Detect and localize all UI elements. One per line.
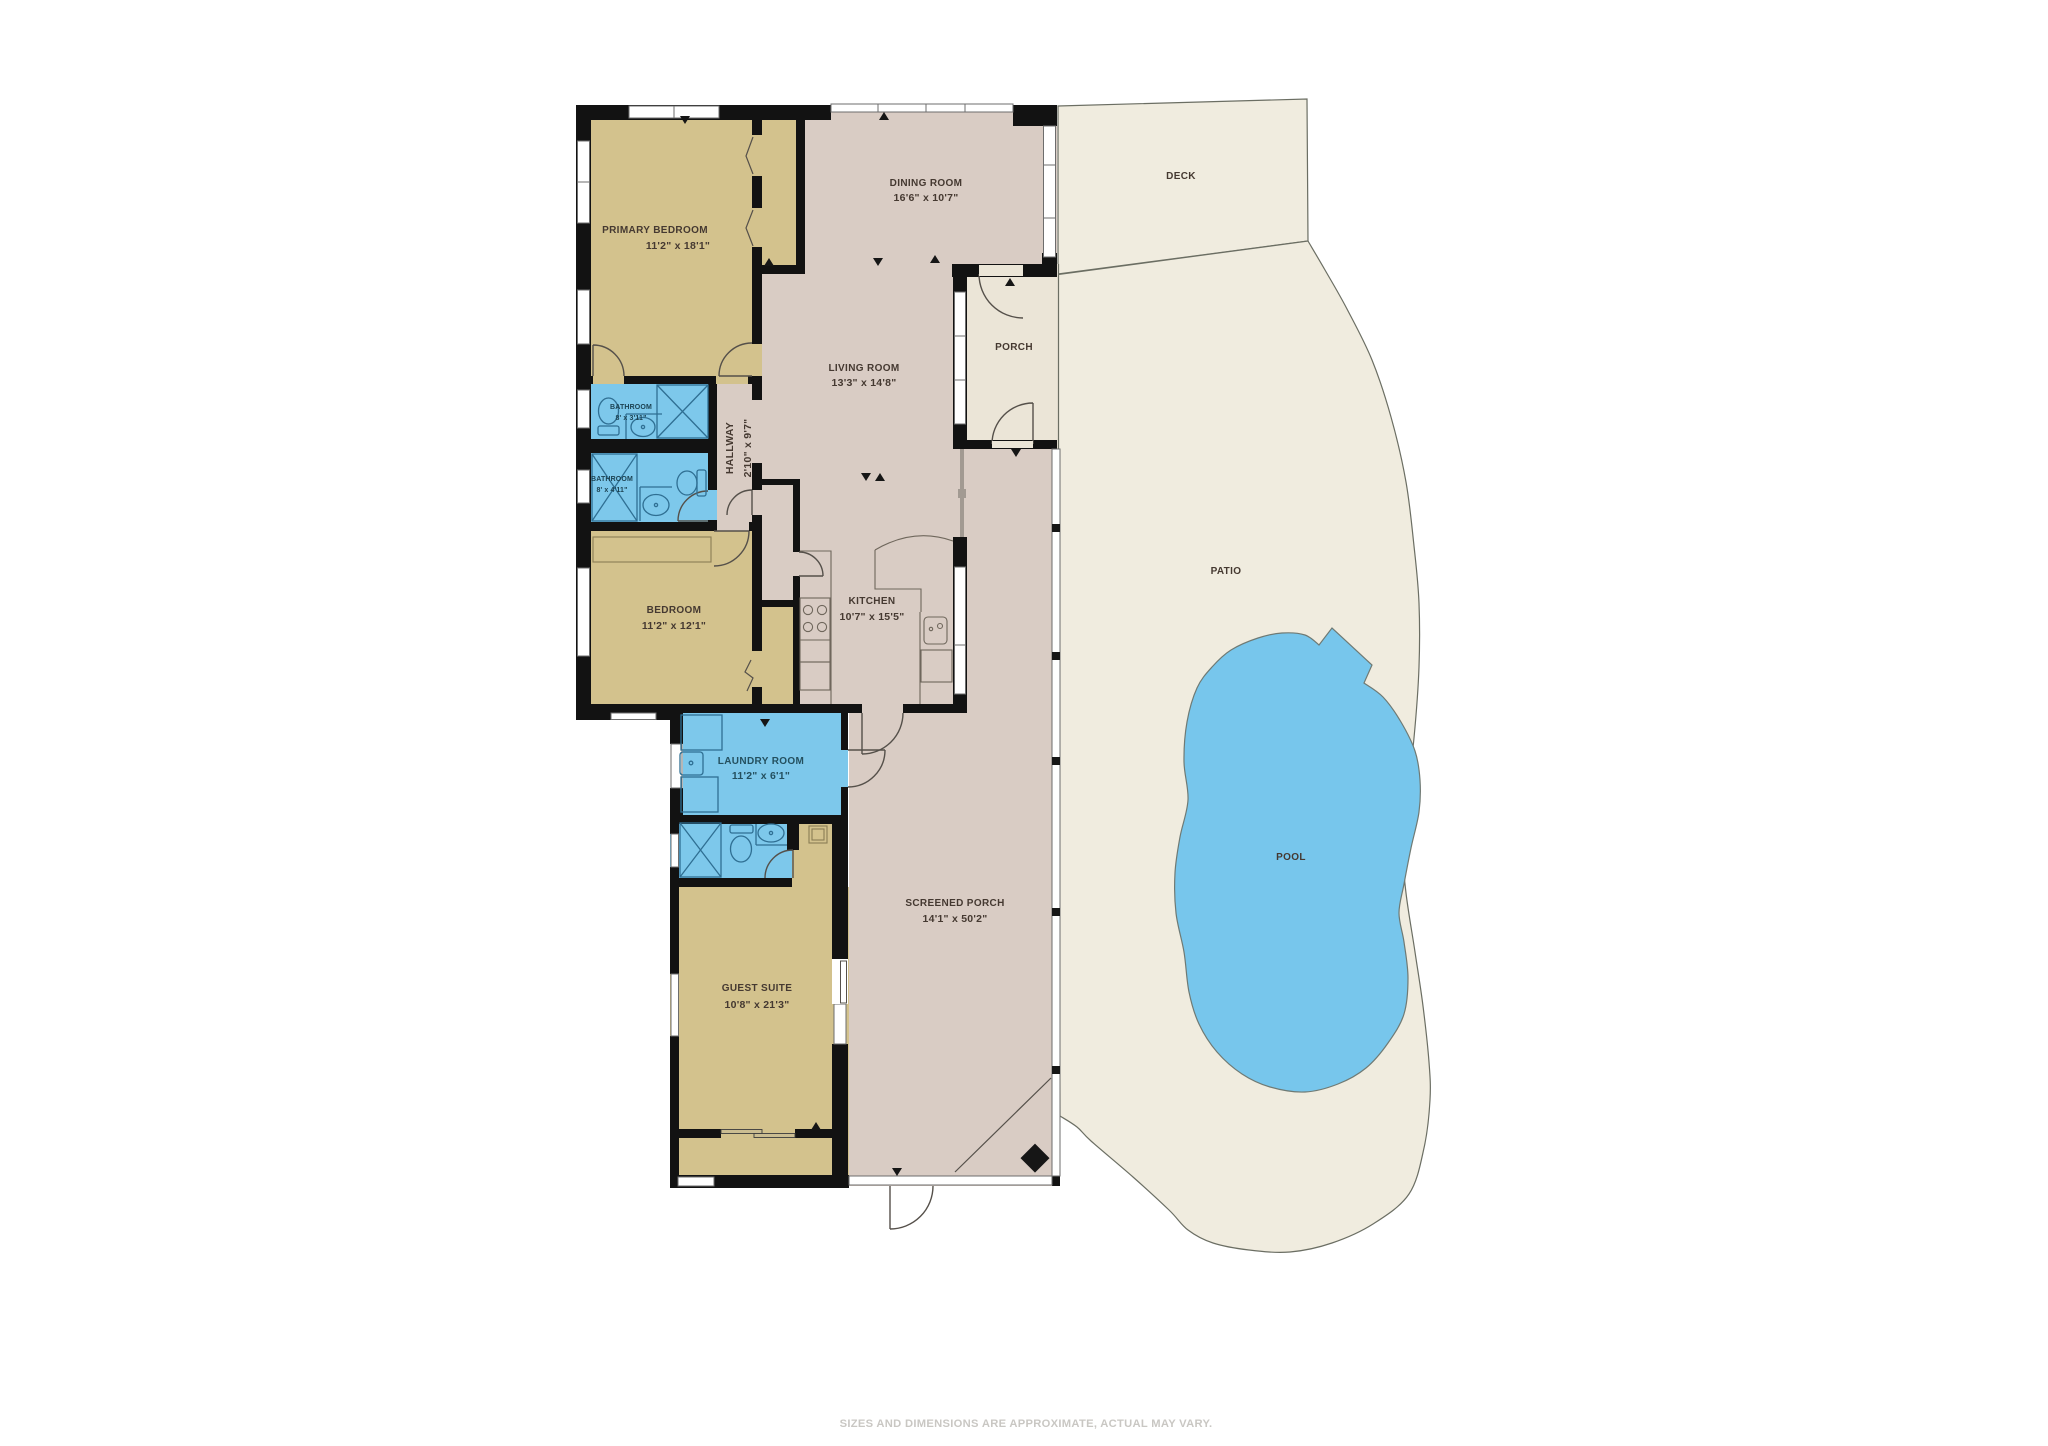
svg-text:SCREENED PORCH: SCREENED PORCH [905, 898, 1004, 909]
svg-text:10'8" x 21'3": 10'8" x 21'3" [725, 999, 790, 1011]
svg-text:10'7" x 15'5": 10'7" x 15'5" [840, 611, 905, 623]
svg-text:PATIO: PATIO [1211, 566, 1242, 577]
svg-text:SIZES AND DIMENSIONS ARE APPRO: SIZES AND DIMENSIONS ARE APPROXIMATE, AC… [840, 1418, 1213, 1430]
svg-text:PRIMARY BEDROOM: PRIMARY BEDROOM [602, 225, 708, 236]
svg-text:11'2" x 12'1": 11'2" x 12'1" [642, 620, 706, 632]
svg-text:DINING ROOM: DINING ROOM [890, 178, 963, 189]
svg-text:LAUNDRY ROOM: LAUNDRY ROOM [718, 756, 804, 767]
svg-text:POOL: POOL [1276, 852, 1306, 863]
svg-text:KITCHEN: KITCHEN [849, 596, 896, 607]
svg-text:GUEST SUITE: GUEST SUITE [722, 983, 793, 994]
svg-text:LIVING ROOM: LIVING ROOM [828, 363, 899, 374]
svg-text:BATHROOM: BATHROOM [610, 404, 652, 411]
svg-text:16'6" x 10'7": 16'6" x 10'7" [894, 192, 959, 204]
svg-text:8' x 3'11": 8' x 3'11" [615, 415, 646, 422]
svg-text:11'2" x 18'1": 11'2" x 18'1" [646, 240, 710, 252]
svg-text:PORCH: PORCH [995, 342, 1033, 353]
svg-text:BEDROOM: BEDROOM [647, 605, 702, 616]
svg-text:13'3" x 14'8": 13'3" x 14'8" [832, 377, 897, 389]
svg-text:DECK: DECK [1166, 171, 1196, 182]
svg-text:14'1" x 50'2": 14'1" x 50'2" [923, 913, 988, 925]
svg-text:BATHROOM: BATHROOM [591, 476, 633, 483]
svg-text:11'2" x 6'1": 11'2" x 6'1" [732, 770, 790, 782]
svg-text:HALLWAY: HALLWAY [724, 422, 736, 474]
svg-text:2'10" x 9'7": 2'10" x 9'7" [742, 419, 754, 478]
svg-text:8' x 4'11": 8' x 4'11" [596, 487, 627, 494]
